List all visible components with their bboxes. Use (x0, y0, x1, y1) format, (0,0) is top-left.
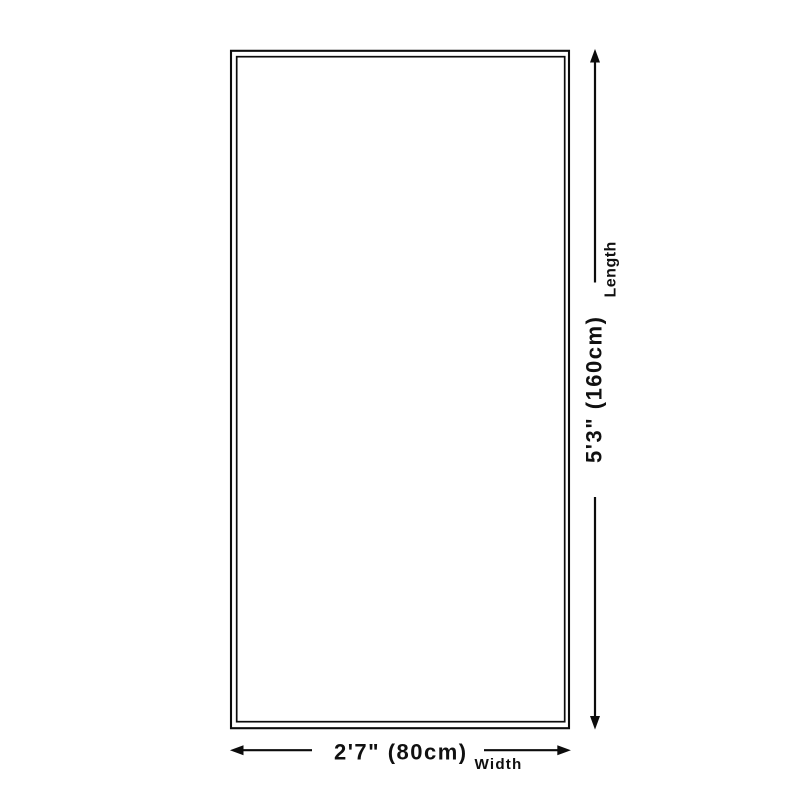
svg-text:2'7" (80cm): 2'7" (80cm) (334, 739, 468, 764)
svg-text:5'3" (160cm): 5'3" (160cm) (582, 316, 607, 463)
svg-text:Width: Width (475, 756, 523, 773)
svg-text:Length: Length (602, 241, 619, 297)
